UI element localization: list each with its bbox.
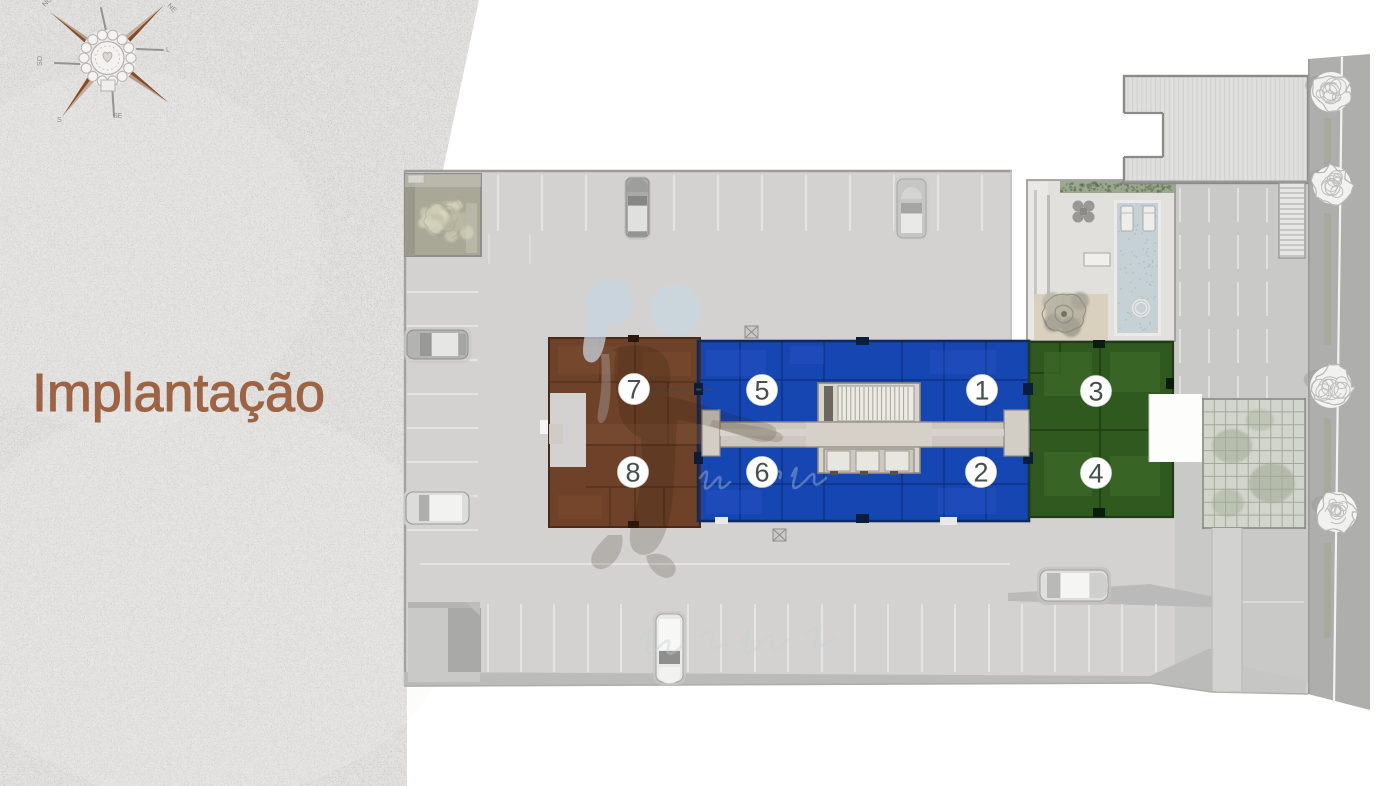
svg-text:4: 4 (1088, 459, 1103, 489)
svg-text:3: 3 (1088, 377, 1103, 407)
svg-text:S: S (57, 117, 62, 124)
svg-text:Implantação: Implantação (32, 363, 325, 423)
svg-text:5: 5 (754, 376, 769, 406)
svg-text:1: 1 (974, 376, 989, 406)
svg-text:L: L (166, 47, 170, 54)
svg-text:7: 7 (626, 375, 641, 405)
svg-text:SE: SE (113, 113, 123, 120)
svg-text:8: 8 (625, 458, 640, 488)
svg-text:SO: SO (37, 55, 44, 66)
svg-text:2: 2 (973, 458, 988, 488)
svg-text:6: 6 (754, 458, 769, 488)
